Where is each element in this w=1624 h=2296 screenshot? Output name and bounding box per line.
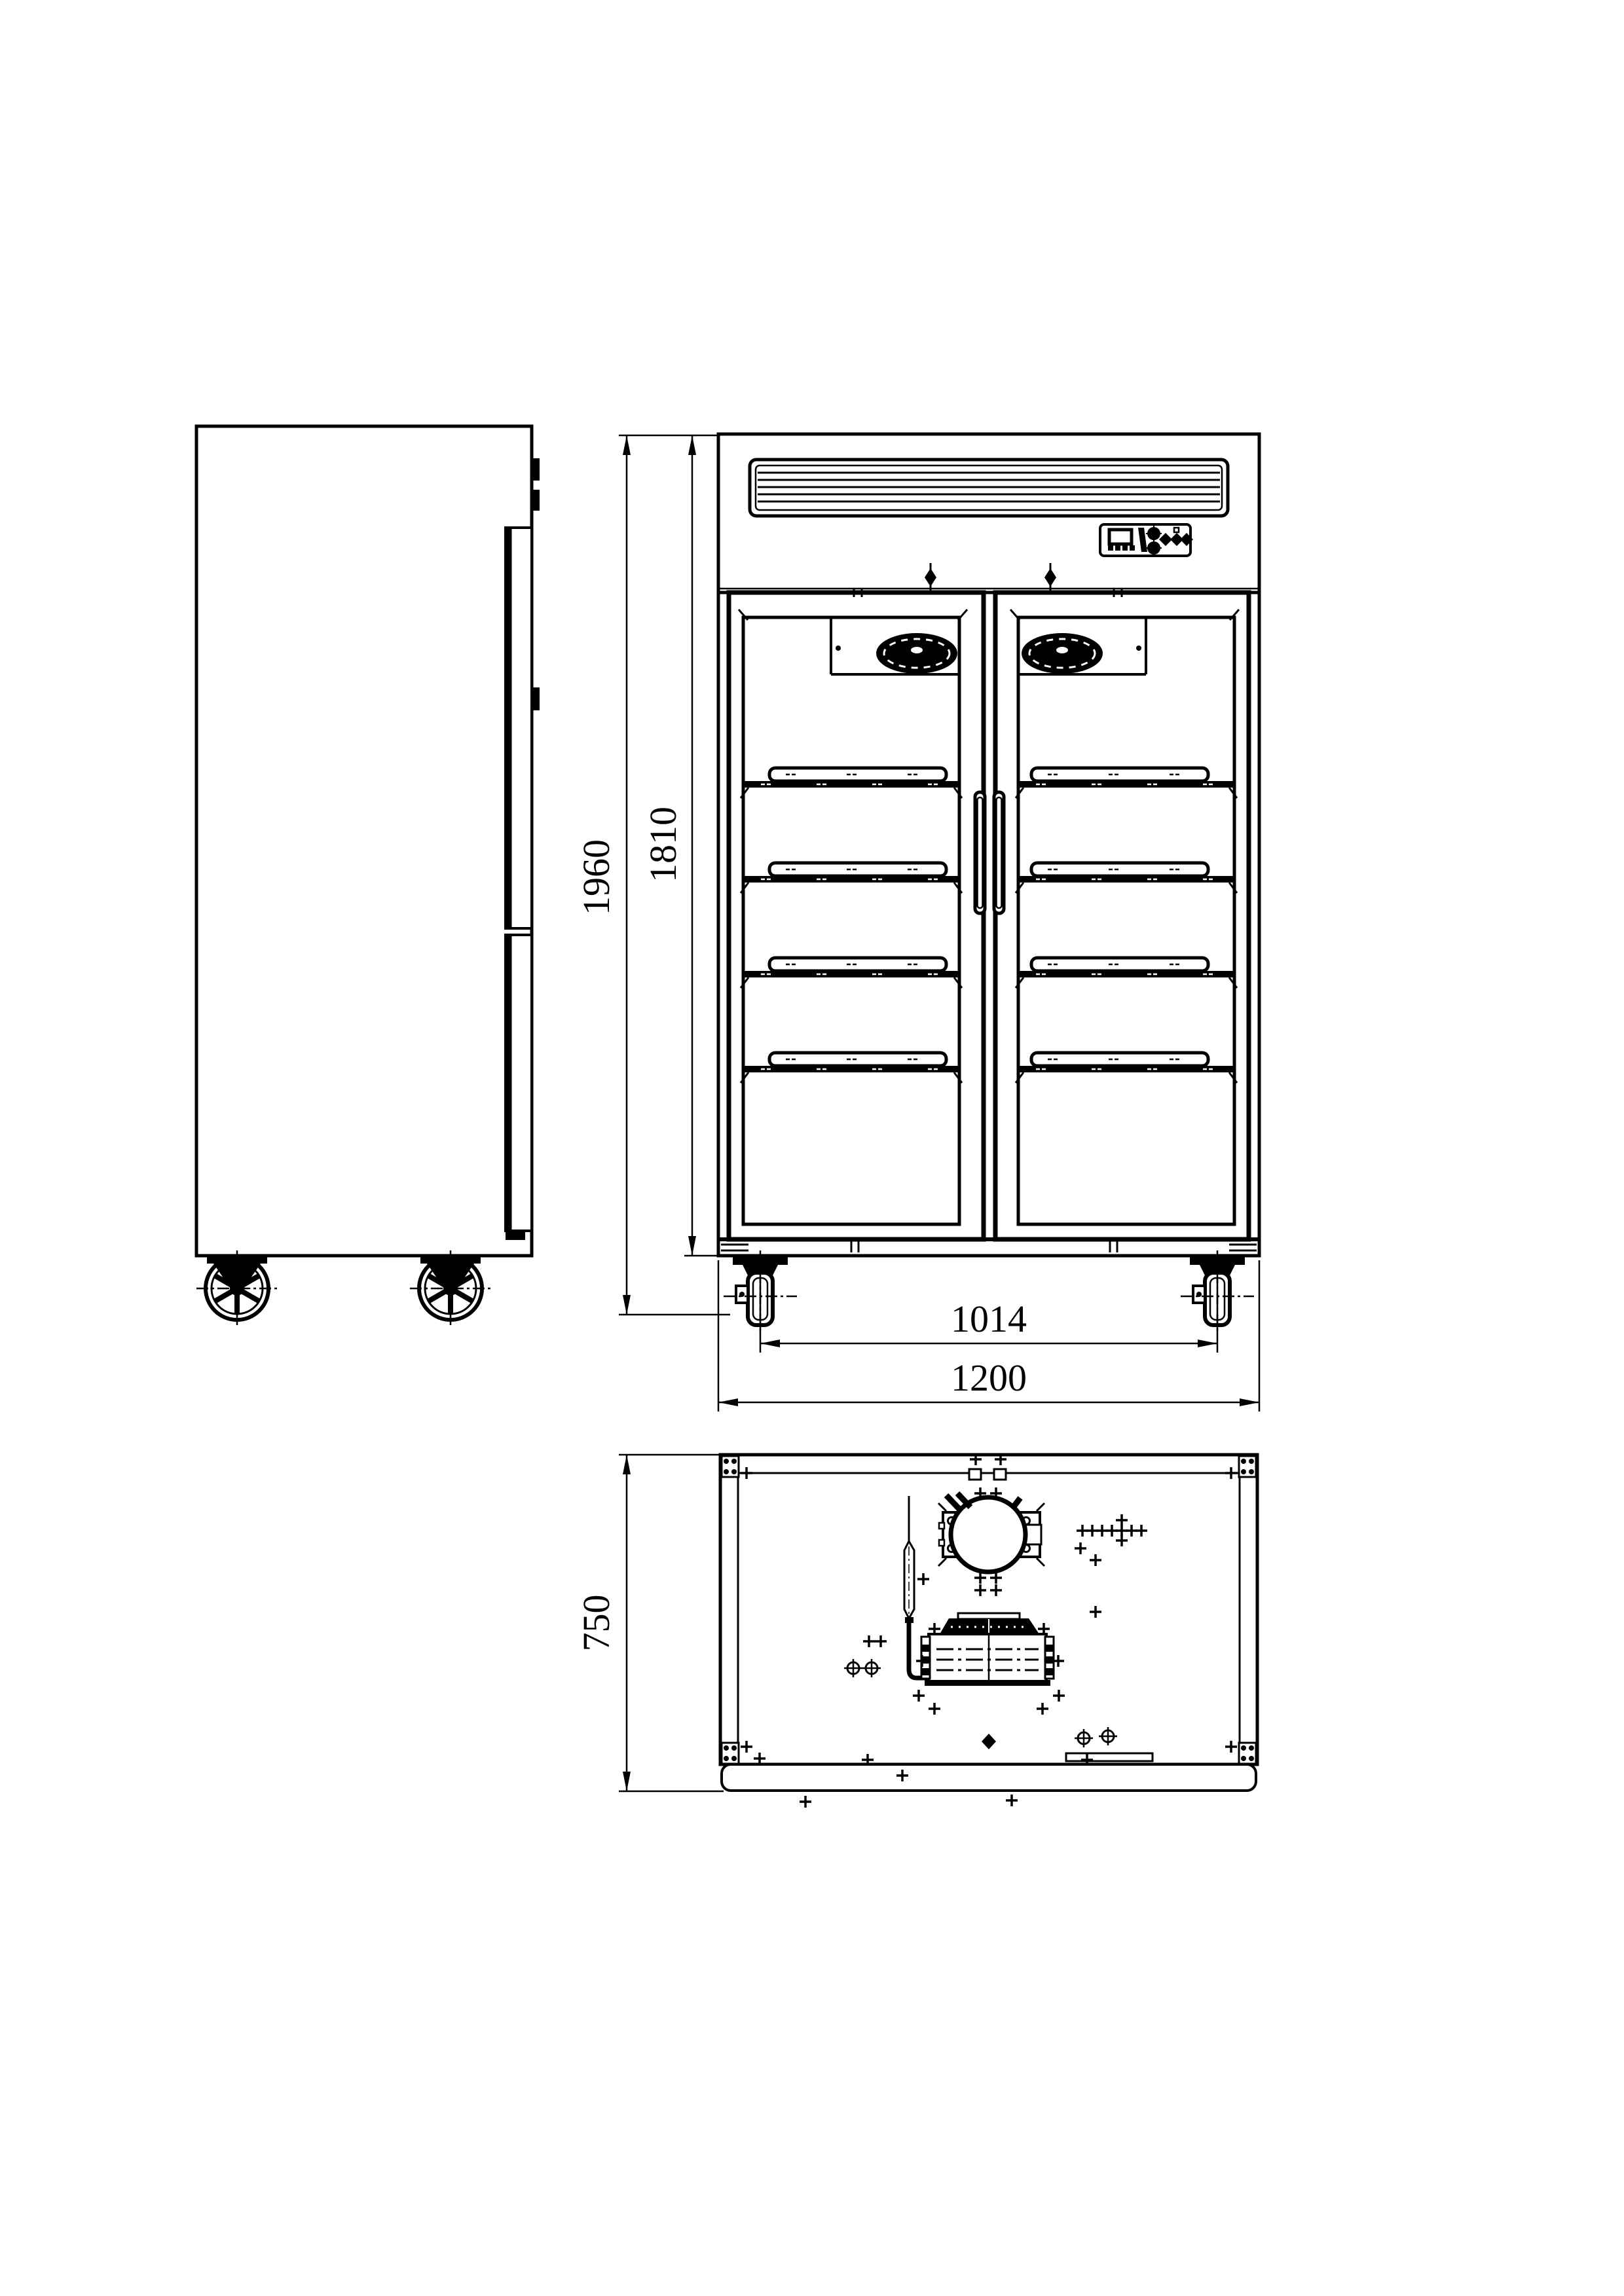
dim-label-caster-spacing: 1014 [951,1298,1027,1340]
left-fan [876,633,957,674]
side-caster-wheel-rear [410,1250,491,1328]
side-door-profile [506,528,532,1240]
dimension-depth: 750 [575,1455,724,1791]
side-caster-wheel-front [196,1250,278,1328]
side-view [196,426,540,1328]
caster-mount [1239,1743,1256,1764]
right-fan [1022,633,1103,674]
top-view [720,1453,1257,1808]
front-cabinet-body [718,434,1259,1256]
front-view [718,434,1259,1333]
dimension-body-height: 1810 [642,435,717,1256]
caster-mount [722,1456,739,1477]
technical-drawing-refrigerator: 1960 1810 1014 1200 750 [0,0,1624,2296]
dim-label-body-height: 1810 [642,807,684,883]
dimension-caster-spacing: 1014 [760,1278,1217,1353]
caster-mount [1239,1456,1256,1477]
dim-label-depth: 750 [575,1595,618,1652]
dim-label-overall-height: 1960 [575,839,618,915]
caster-mount [722,1743,739,1764]
dim-label-overall-width: 1200 [951,1357,1027,1399]
door-front-edge [722,1764,1256,1791]
side-cabinet-body [196,426,532,1256]
bottom-bracket [1066,1753,1153,1761]
